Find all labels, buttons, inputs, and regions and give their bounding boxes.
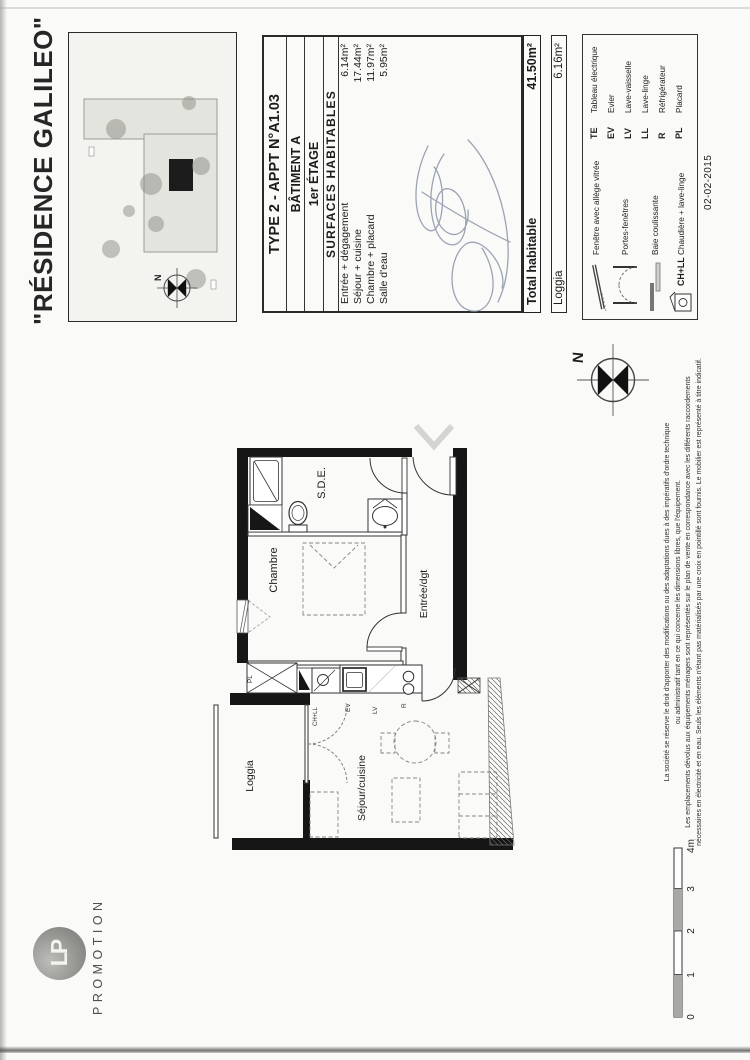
total-label: Total habitable xyxy=(525,218,539,305)
surface-value: 6.14m² xyxy=(339,44,352,77)
dining-table xyxy=(394,721,436,763)
surface-label: Chambre + placard xyxy=(365,214,378,304)
loggia-label: Loggia xyxy=(553,270,565,305)
hob xyxy=(403,671,414,682)
legend-french-doors-label: Portes-fenêtres xyxy=(621,199,630,255)
legend-abbr: R xyxy=(657,133,667,140)
tag-lv: LV xyxy=(372,707,379,714)
scale-tick-0: 0 xyxy=(686,1010,697,1024)
surface-value: 11.97m² xyxy=(365,44,378,82)
site-map-drawing xyxy=(69,34,235,321)
cabinet xyxy=(392,778,420,822)
page-title: "RÉSIDENCE GALILEO" xyxy=(28,27,59,325)
logo: LP xyxy=(33,927,86,980)
surface-row: Entrée + dégagement 6.14m² xyxy=(339,37,352,311)
legend: Fenêtre avec allège vitrée Portes-fenêtr… xyxy=(582,34,698,320)
tag-chll: CH+LL xyxy=(313,707,319,726)
highlighted-building xyxy=(169,159,193,191)
scan-edge-shadow xyxy=(0,0,7,1060)
legend-abbr-label: Lave-linge xyxy=(641,75,650,113)
disclaimer-line: nécessaires en électricité et en eau. Se… xyxy=(695,322,706,882)
surfaces-title: SURFACES HABITABLES xyxy=(324,37,339,311)
building-wing xyxy=(84,99,217,139)
room-label-sde: S.D.E. xyxy=(316,462,328,504)
disclaimer-line: La société se réserve le droit d'apporte… xyxy=(663,322,674,882)
window-symbol-icon xyxy=(589,259,607,313)
bed xyxy=(303,543,365,615)
surface-value: 5.95m² xyxy=(378,44,391,77)
french-doors-symbol-icon xyxy=(609,259,643,313)
toilet-tank xyxy=(289,525,307,532)
loggia-box: Loggia 6.16m² xyxy=(551,35,567,313)
mini-compass-north: N xyxy=(153,275,163,282)
apartment-floor: 1er ÉTAGE xyxy=(305,37,324,311)
boiler-symbol-icon xyxy=(669,289,695,313)
common-area-hatch xyxy=(458,678,514,845)
surface-value: 17.44m² xyxy=(352,44,365,83)
legend-abbr: EV xyxy=(606,127,616,139)
apartment-building: BÂTIMENT A xyxy=(287,37,305,311)
disclaimer-line: Les emplacements dévolus aux équipements… xyxy=(684,322,695,882)
legend-abbr: PL xyxy=(674,127,684,139)
signature xyxy=(398,122,533,332)
legend-boiler-label: Chaudière + lave-linge xyxy=(677,173,686,255)
room-label-sejour: Séjour/cuisine xyxy=(356,742,368,834)
logo-initials: LP xyxy=(46,941,73,966)
scan-edge-shadow xyxy=(0,7,750,9)
hob xyxy=(403,684,414,695)
chair xyxy=(435,733,449,753)
landscape-sheet: "RÉSIDENCE GALILEO" LP PROMOTION xyxy=(0,0,750,1060)
total-habitable-box: Total habitable 41.50m² xyxy=(523,35,541,313)
legend-window-label: Fenêtre avec allège vitrée xyxy=(592,161,601,255)
legend-abbr: LL xyxy=(640,128,650,139)
surface-label: Salle d'eau xyxy=(378,252,391,304)
surface-row: Chambre + placard 11.97m² xyxy=(365,37,378,311)
legend-abbr-label: Réfrigérateur xyxy=(658,65,667,113)
legend-sliding-label: Baie coulissante xyxy=(651,195,660,255)
tag-ev: EV xyxy=(345,703,352,712)
logo-subtitle: PROMOTION xyxy=(91,885,105,1015)
legend-abbr: TE xyxy=(589,127,599,139)
surface-label: Entrée + dégagement xyxy=(339,203,352,304)
site-map: N xyxy=(68,32,237,322)
scale-tick-3: 3 xyxy=(686,882,697,896)
legend-abbr-label: Lave-vaisselle xyxy=(624,61,633,113)
car xyxy=(89,147,94,156)
sliding-bay-symbol-icon xyxy=(647,259,663,313)
legend-abbr-label: Placard xyxy=(675,85,684,113)
compass-rose-icon xyxy=(563,330,655,422)
tag-r: R xyxy=(401,703,408,708)
entrance-arrow-icon xyxy=(416,426,452,446)
surface-row: Salle d'eau 5.95m² xyxy=(378,37,391,311)
scale-tick-2: 2 xyxy=(686,924,697,938)
scanned-plan-sheet: "RÉSIDENCE GALILEO" LP PROMOTION xyxy=(0,0,750,1060)
disclaimer-line: ou administratif tant en ce qui concerne… xyxy=(674,322,685,882)
legend-abbr-label: Tableau électrique xyxy=(590,47,599,113)
tag-pl: PL xyxy=(247,675,254,683)
legend-boiler-abbr: CH+LL xyxy=(676,257,686,286)
room-label-entree: Entrée/dgt xyxy=(418,556,430,632)
room-label-chambre: Chambre xyxy=(268,537,280,603)
compass-north-label: N xyxy=(570,351,587,364)
surface-row: Séjour + cuisine 17.44m² xyxy=(352,37,365,311)
rug xyxy=(310,792,338,837)
disclaimer: La société se réserve le droit d'apporte… xyxy=(663,322,705,882)
loggia-value: 6.16m² xyxy=(553,43,565,79)
surface-label: Séjour + cuisine xyxy=(352,229,365,304)
apartment-type: TYPE 2 - APPT N°A1.03 xyxy=(264,37,287,311)
kitchen-strip xyxy=(247,663,422,694)
room-label-loggia: Loggia xyxy=(244,750,256,802)
shower xyxy=(250,457,282,505)
bedroom-window xyxy=(237,600,270,633)
car xyxy=(211,280,216,289)
scan-edge-shadow xyxy=(0,1046,750,1053)
total-value: 41.50m² xyxy=(525,43,539,90)
date: 02-02-2015 xyxy=(703,140,714,210)
legend-abbr-label: Evier xyxy=(607,94,616,113)
scale-tick-1: 1 xyxy=(686,968,697,982)
legend-abbr: LV xyxy=(623,128,633,139)
chair xyxy=(381,733,395,753)
